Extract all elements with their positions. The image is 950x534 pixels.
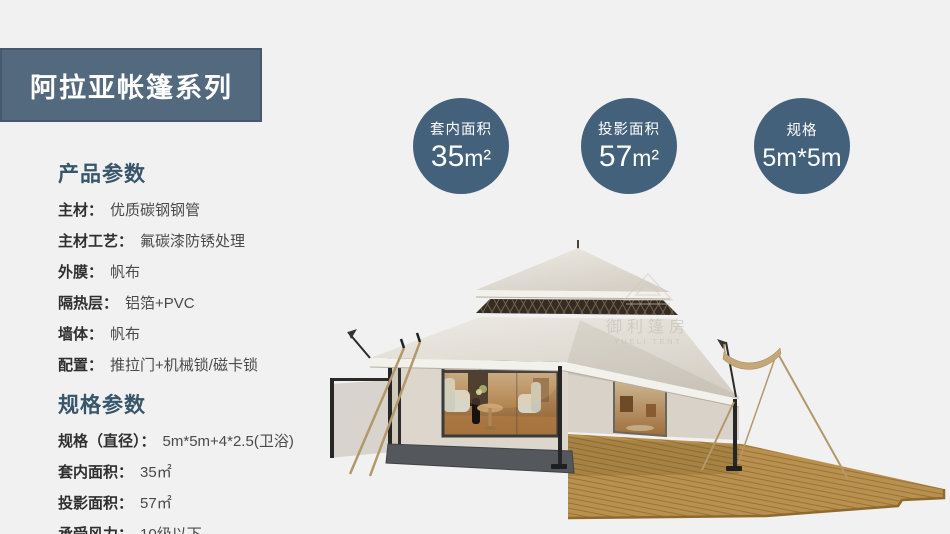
spec-row-interior-area: 套内面积： 35㎡ [58,462,358,484]
product-sheet: 阿拉亚帐篷系列 产品参数 主材： 优质碳钢钢管 主材工艺： 氟碳漆防锈处理 外膜… [0,0,950,534]
spec-params-heading: 规格参数 [58,389,358,419]
spec-row-projected-area: 投影面积： 57㎡ [58,493,358,515]
param-value: 推拉门+机械锁/磁卡锁 [110,355,258,377]
param-row-outer-membrane: 外膜： 帆布 [58,262,358,284]
param-label: 墙体： [58,324,103,346]
series-banner: 阿拉亚帐篷系列 [0,48,262,122]
param-value: 铝箔+PVC [125,293,195,315]
badge-label: 投影面积 [598,118,660,139]
badge-label: 规格 [787,119,818,140]
badge-size-spec: 规格 5m*5m [754,98,850,194]
param-value: 10级以下 [140,524,202,534]
param-label: 隔热层： [58,293,118,315]
param-value: 氟碳漆防锈处理 [140,231,245,253]
badge-value: 5m*5m [762,142,841,174]
param-label: 主材： [58,200,103,222]
badge-value: 57m² [599,141,659,174]
badge-projected-area: 投影面积 57m² [581,98,677,194]
param-value: 帆布 [110,324,140,346]
param-label: 配置： [58,355,103,377]
param-row-configuration: 配置： 推拉门+机械锁/磁卡锁 [58,355,358,377]
parameter-column: 产品参数 主材： 优质碳钢钢管 主材工艺： 氟碳漆防锈处理 外膜： 帆布 隔热层… [58,158,358,534]
param-label: 规格（直径）： [58,431,156,453]
param-row-wall: 墙体： 帆布 [58,324,358,346]
badge-label: 套内面积 [430,118,492,139]
product-params-heading: 产品参数 [58,158,358,188]
param-value: 5m*5m+4*2.5(卫浴) [163,431,294,453]
param-row-insulation: 隔热层： 铝箔+PVC [58,293,358,315]
tent-illustration: 御利篷房 YUELI TENT [330,232,950,532]
param-value: 优质碳钢钢管 [110,200,200,222]
page-title: 阿拉亚帐篷系列 [30,66,233,105]
param-value: 57㎡ [140,493,172,515]
param-label: 承受风力： [58,524,133,534]
param-label: 套内面积： [58,462,133,484]
param-label: 外膜： [58,262,103,284]
badge-interior-area: 套内面积 35m² [413,98,509,194]
param-label: 投影面积： [58,493,133,515]
param-value: 帆布 [110,262,140,284]
watermark-cn: 御利篷房 [606,317,690,336]
spec-row-wind-resistance: 承受风力： 10级以下 [58,524,358,534]
param-value: 35㎡ [140,462,172,484]
badge-value: 35m² [431,141,491,174]
spec-row-size: 规格（直径）： 5m*5m+4*2.5(卫浴) [58,431,358,453]
param-row-material-process: 主材工艺： 氟碳漆防锈处理 [58,231,358,253]
param-row-material: 主材： 优质碳钢钢管 [58,200,358,222]
wooden-deck [568,434,944,518]
roof-lattice [476,299,678,315]
param-label: 主材工艺： [58,231,133,253]
watermark-en: YUELI TENT [614,337,682,346]
